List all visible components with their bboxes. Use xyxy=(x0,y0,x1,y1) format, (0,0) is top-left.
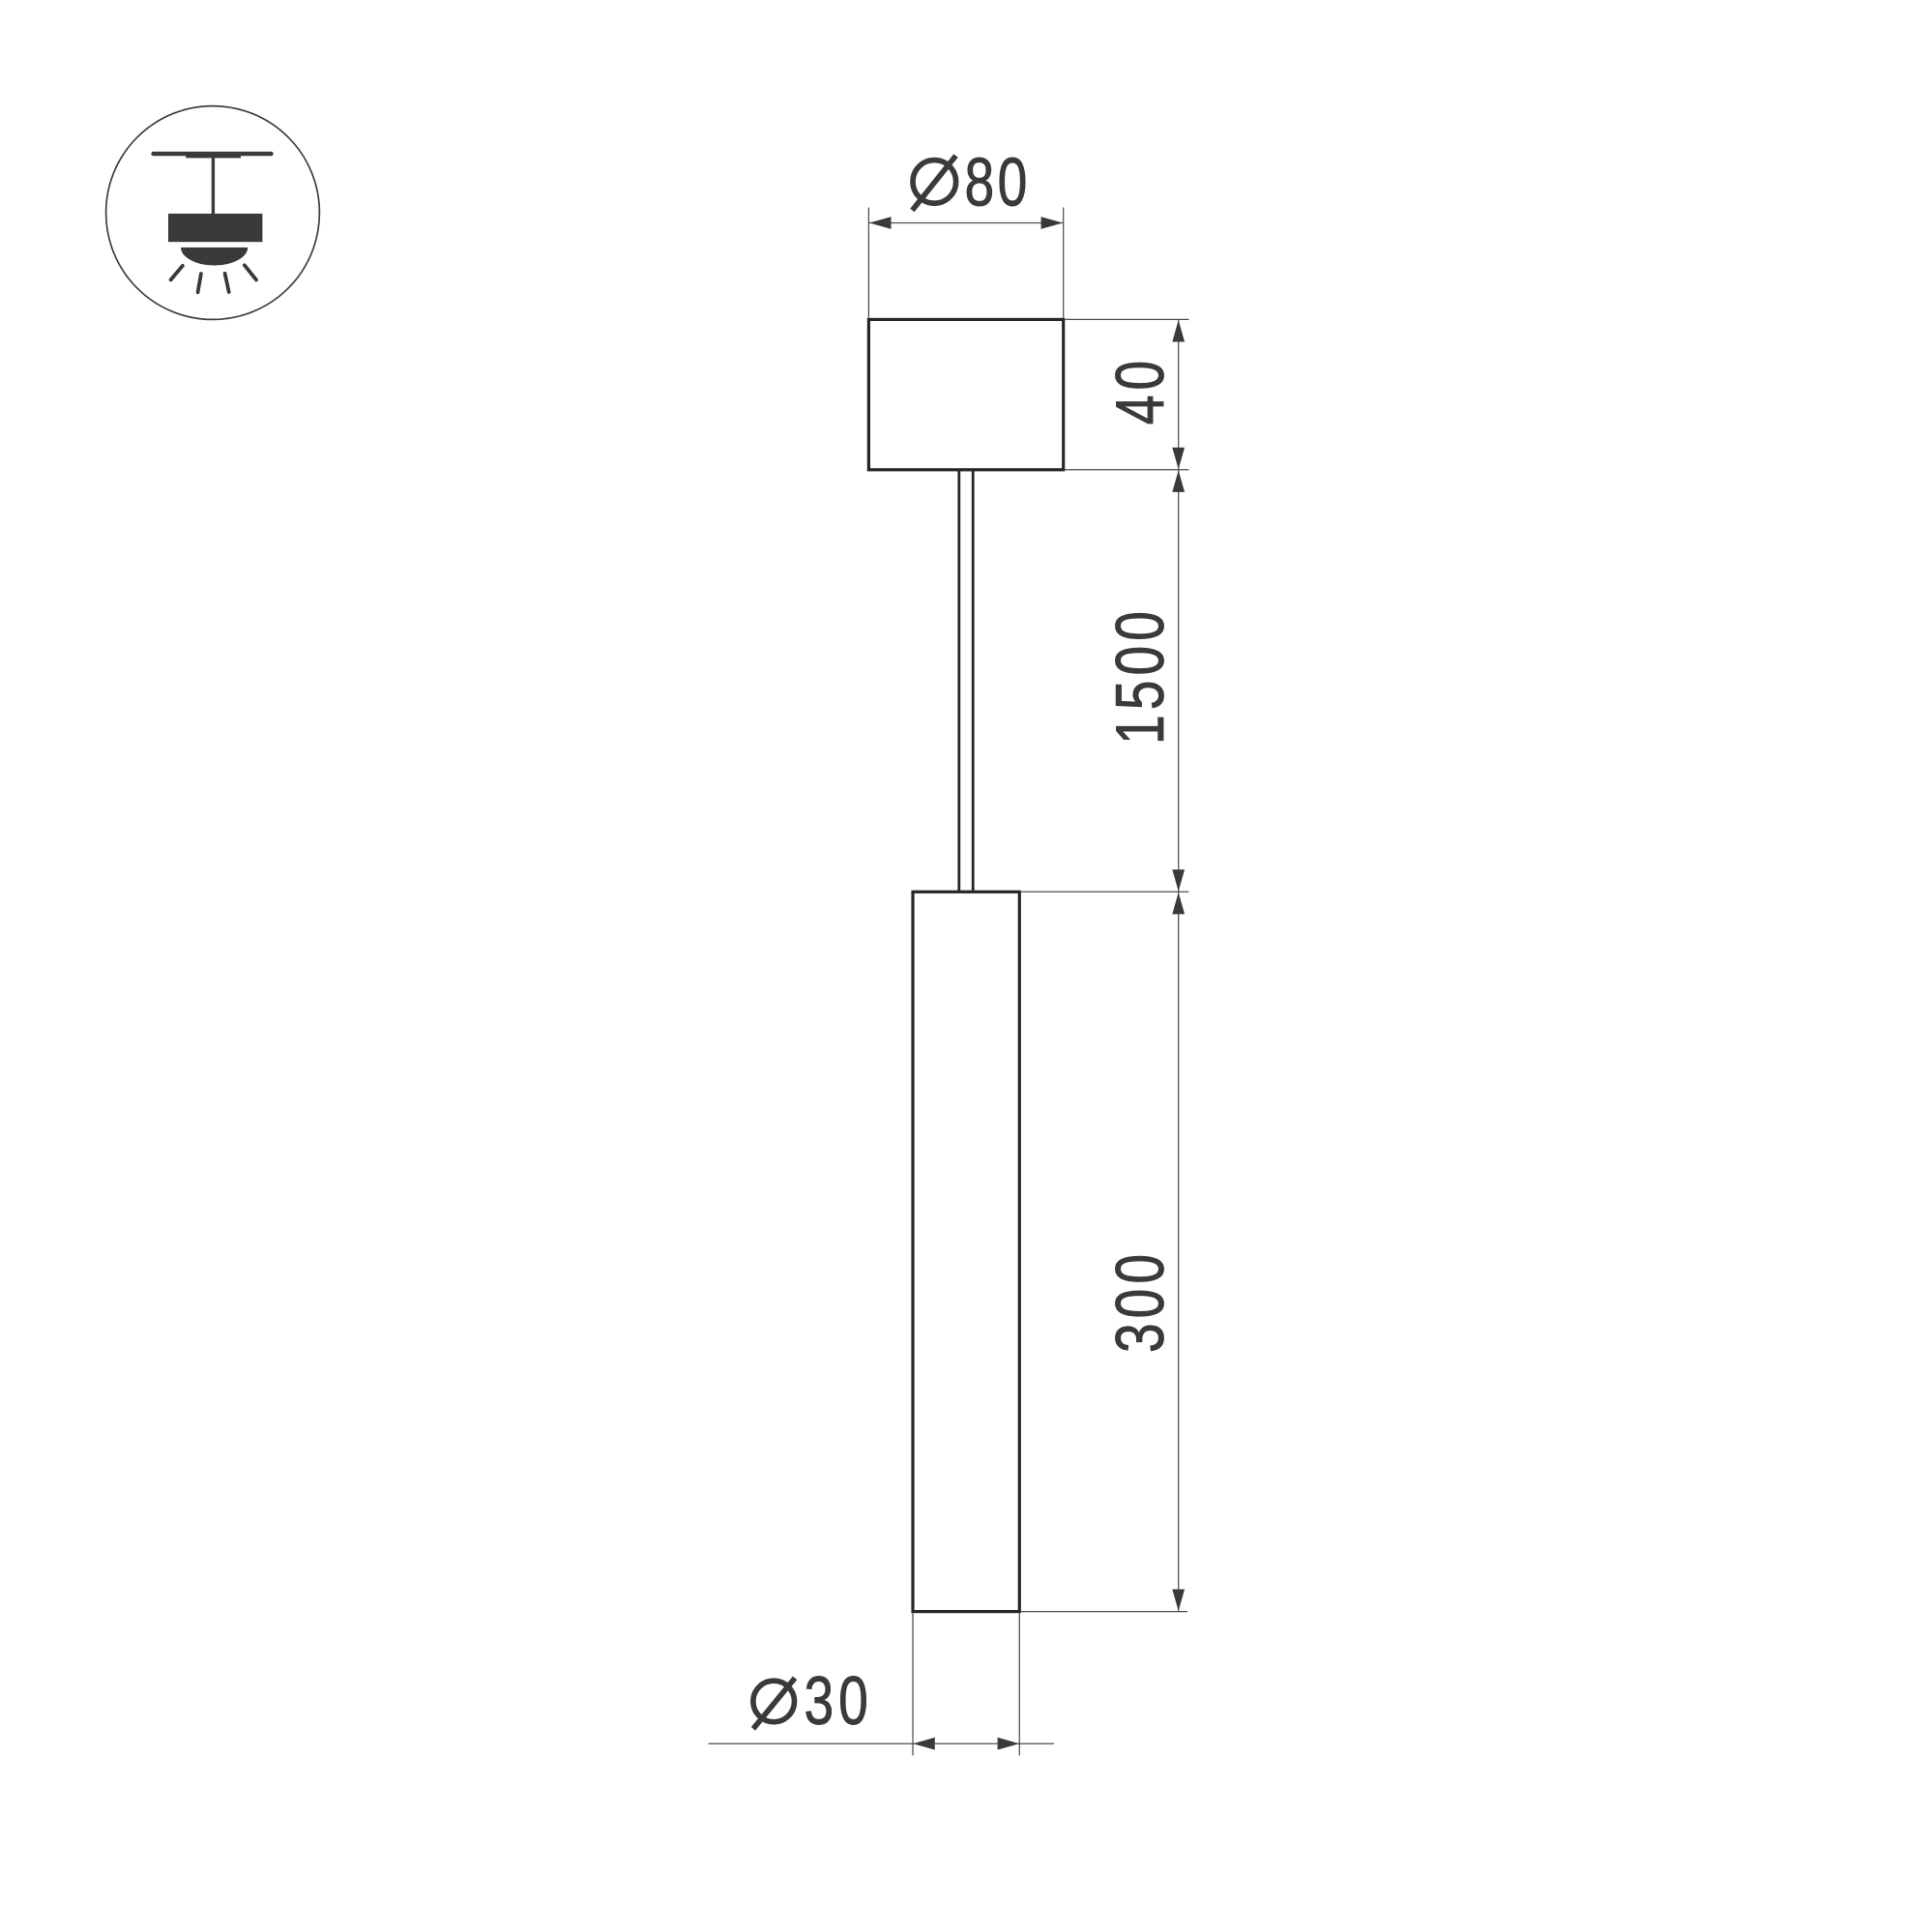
svg-text:1: 1 xyxy=(1103,715,1179,745)
svg-text:3: 3 xyxy=(1103,1323,1179,1353)
svg-text:0: 0 xyxy=(1103,1254,1179,1284)
svg-text:4: 4 xyxy=(1103,395,1179,425)
svg-text:0: 0 xyxy=(1103,611,1179,641)
svg-text:8: 8 xyxy=(964,145,994,220)
svg-text:0: 0 xyxy=(838,1664,868,1740)
svg-text:3: 3 xyxy=(805,1664,834,1740)
svg-text:0: 0 xyxy=(1103,361,1179,391)
svg-text:0: 0 xyxy=(998,145,1028,220)
svg-text:5: 5 xyxy=(1103,681,1179,711)
svg-text:0: 0 xyxy=(1103,646,1179,676)
svg-text:0: 0 xyxy=(1103,1289,1179,1319)
